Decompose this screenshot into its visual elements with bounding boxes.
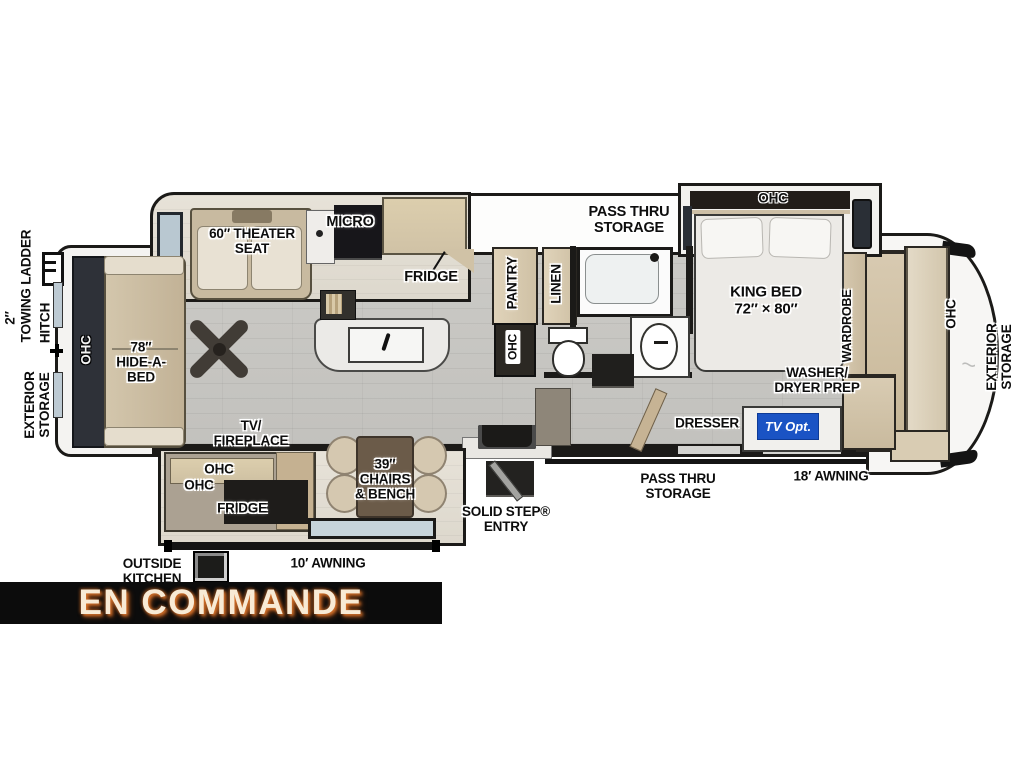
label-micro: MICRO bbox=[326, 215, 373, 231]
label-pass-thru-bottom: PASS THRUSTORAGE bbox=[640, 472, 715, 502]
front-glass-cabinet bbox=[904, 246, 950, 436]
label-hide-a-bed: 78″HIDE-A-BED bbox=[116, 341, 166, 386]
bedroom-steps bbox=[592, 354, 634, 388]
theater-seat-console bbox=[232, 210, 272, 223]
slide-window bbox=[852, 199, 872, 249]
awning-bar-10 bbox=[168, 542, 436, 550]
label-awning-18: 18′ AWNING bbox=[794, 470, 869, 485]
entry-cooktop bbox=[478, 425, 536, 449]
label-exterior-storage-right: EXTERIORSTORAGE bbox=[985, 323, 1015, 390]
front-drawers bbox=[890, 430, 950, 462]
label-ohc-front: OHC bbox=[945, 299, 960, 328]
shower-head-icon bbox=[650, 253, 659, 262]
label-ohc-bed: OHC bbox=[758, 192, 787, 207]
ceiling-fan-hub bbox=[213, 343, 226, 356]
window-slot bbox=[678, 446, 740, 454]
rear-window bbox=[53, 282, 63, 328]
slide-window bbox=[683, 206, 692, 250]
outside-kitchen-icon bbox=[193, 551, 229, 583]
label-towing-ladder: TOWING LADDER bbox=[20, 230, 35, 343]
rear-window bbox=[53, 372, 63, 418]
entry-door-panel bbox=[535, 388, 571, 446]
label-king-bed: KING BED72″ × 80″ bbox=[730, 285, 802, 318]
slide-window bbox=[308, 518, 436, 539]
front-cap-logo: ≀ bbox=[956, 340, 986, 370]
sofa-armrest bbox=[104, 427, 184, 446]
label-awning-10: 10′ AWNING bbox=[291, 557, 366, 572]
label-chairs-bench: 39″CHAIRS& BENCH bbox=[355, 458, 415, 503]
dinette-chair bbox=[410, 474, 447, 513]
tv-opt-label: TV Opt. bbox=[765, 419, 811, 434]
bed-pillow bbox=[700, 217, 763, 259]
label-theater-seat: 60″ THEATERSEAT bbox=[209, 227, 295, 257]
kitchen-counter bbox=[382, 197, 467, 255]
tv-opt-badge: TV Opt. bbox=[757, 413, 819, 440]
label-wardrobe: WARDROBE bbox=[841, 290, 855, 363]
awning-end-cap bbox=[164, 540, 172, 552]
label-ohc-sofa: OHC bbox=[80, 335, 95, 364]
awning-end-cap bbox=[432, 540, 440, 552]
vanity-sink bbox=[640, 323, 678, 370]
label-ohc-ent-1: OHC bbox=[204, 463, 233, 478]
label-pass-thru-top: PASS THRUSTORAGE bbox=[589, 205, 670, 237]
label-dresser: DRESSER bbox=[675, 417, 739, 432]
toilet-bowl bbox=[552, 340, 585, 377]
label-tv-fireplace: TV/FIREPLACE bbox=[214, 419, 289, 449]
rear-ladder-rung bbox=[44, 269, 56, 272]
label-solid-step: SOLID STEP®ENTRY bbox=[462, 505, 550, 535]
rear-ladder-rung bbox=[44, 261, 56, 264]
status-banner: EN COMMANDE bbox=[0, 582, 442, 624]
floorplan-image: ≀ TV Opt. bbox=[0, 0, 1024, 768]
label-towing-size: 2″ bbox=[4, 311, 19, 325]
label-hitch: HITCH bbox=[39, 303, 54, 343]
label-ohc-ent-2: OHC bbox=[184, 479, 213, 494]
label-linen: LINEN bbox=[550, 264, 565, 304]
status-banner-text: EN COMMANDE bbox=[79, 583, 364, 623]
label-fridge: FRIDGE bbox=[404, 270, 458, 286]
dinette-chair bbox=[410, 436, 447, 475]
sink-faucet-dot bbox=[316, 230, 323, 237]
bed-pillow bbox=[768, 217, 831, 259]
label-fridge-outside: FRIDGE bbox=[217, 502, 267, 517]
label-ohc-pantry: OHC bbox=[505, 330, 520, 364]
label-exterior-storage-left: EXTERIORSTORAGE bbox=[23, 371, 53, 438]
vanity-faucet bbox=[654, 341, 668, 344]
label-pantry: PANTRY bbox=[506, 257, 521, 310]
sofa-armrest bbox=[104, 256, 184, 275]
label-washer-dryer: WASHER/DRYER PREP bbox=[774, 366, 859, 396]
hitch-plus-icon bbox=[50, 344, 63, 357]
trash-bin-front bbox=[326, 294, 342, 314]
shower-pan bbox=[585, 254, 659, 304]
